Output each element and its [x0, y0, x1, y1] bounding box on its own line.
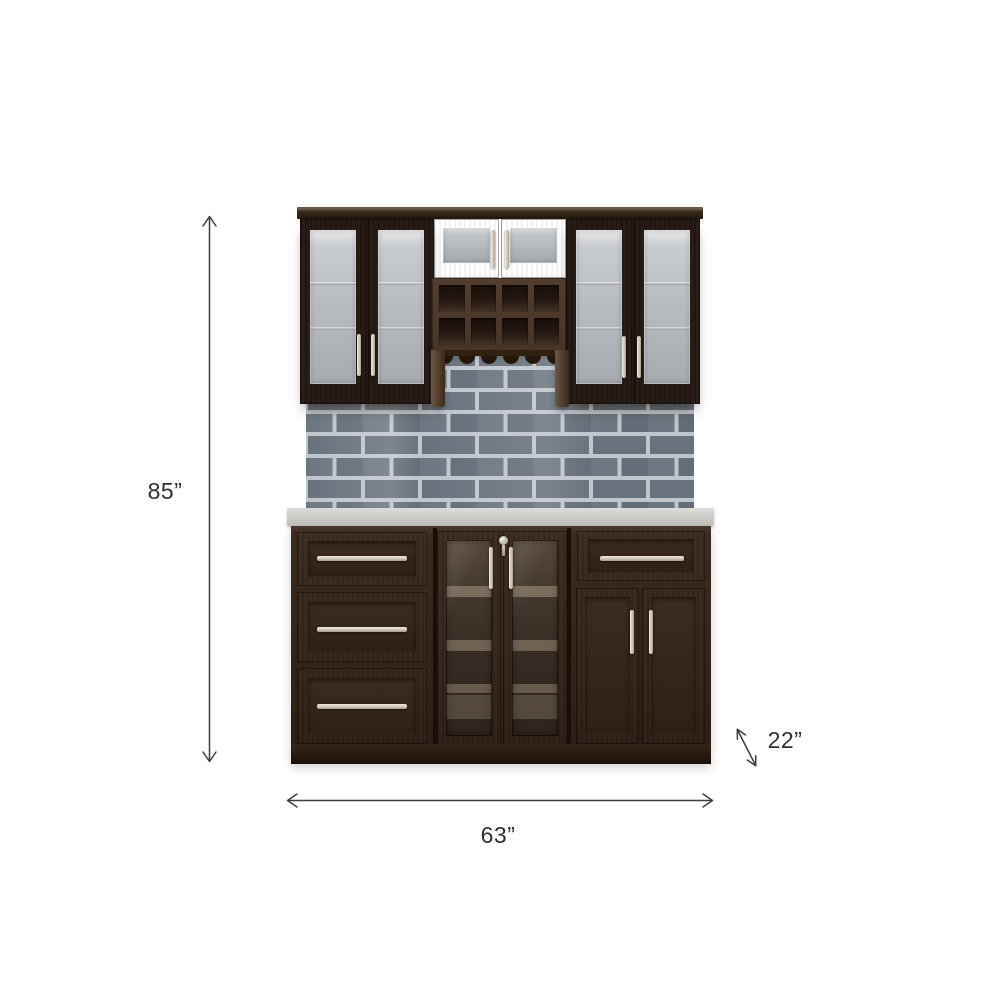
height-dimension-label: 85” — [140, 478, 190, 505]
width-dimension-arrow — [288, 794, 713, 807]
product-dimension-diagram: 85” 63” 22” — [0, 0, 1000, 1000]
height-dimension-arrow — [203, 217, 216, 762]
depth-dimension-label: 22” — [758, 727, 812, 754]
width-dimension-label: 63” — [468, 822, 528, 849]
depth-dimension-arrow — [737, 729, 756, 766]
